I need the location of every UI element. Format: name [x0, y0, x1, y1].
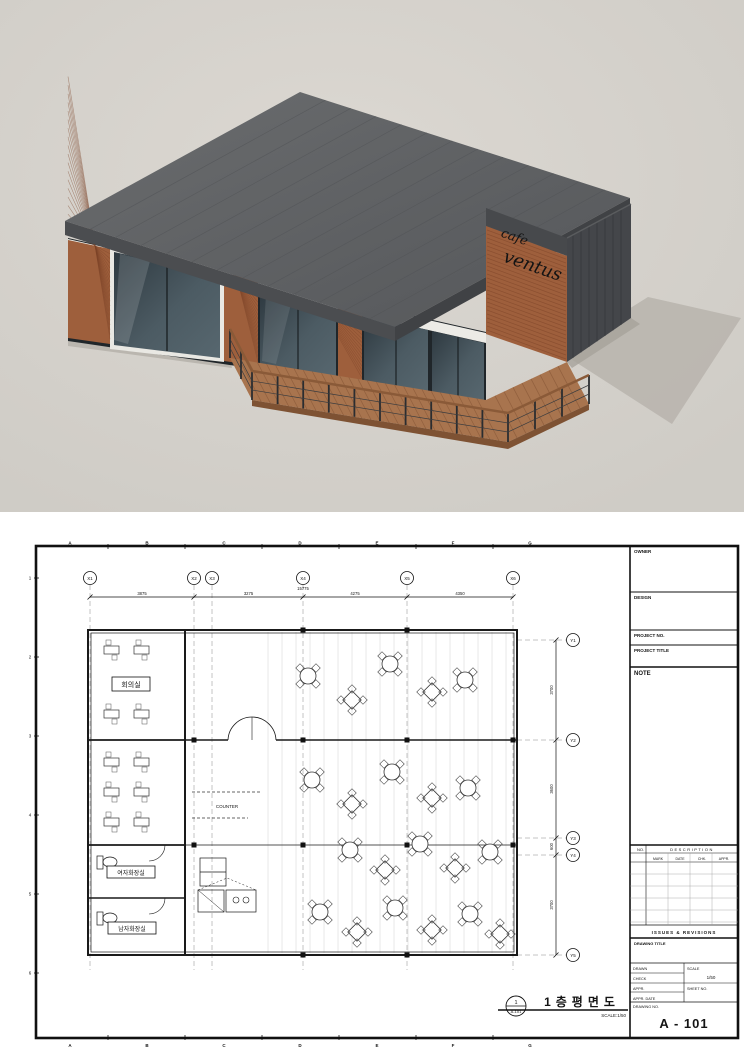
render-3d-view: cafe ventus	[0, 0, 744, 512]
scale-value: 1/50	[707, 975, 716, 980]
grid-y-label: Y2	[570, 738, 576, 743]
dim-top: 4350	[455, 591, 465, 596]
dim-top: 3275	[244, 591, 254, 596]
grid-x-label: X4	[300, 576, 306, 581]
edge-letter-bottom: E	[375, 1043, 378, 1048]
sheet-no-label: SHEET NO.	[687, 987, 707, 991]
edge-letter-top: G	[528, 541, 532, 546]
toilet-women-label: 여자화장실	[117, 869, 145, 877]
project-title-label: PROJECT TITLE	[634, 648, 669, 653]
check-label: CHECK	[633, 977, 647, 981]
design-label: DESIGN	[634, 595, 651, 600]
grid-y-label: Y4	[570, 853, 576, 858]
grid-x-label: X5	[404, 576, 410, 581]
appr-date-label: APPR. DATE	[633, 997, 656, 1001]
grid-y-label: Y5	[570, 953, 576, 958]
grid-x-label: X1	[87, 576, 93, 581]
page: cafe ventus AABBCCDDEEFFGG123456 X1X2X3X…	[0, 0, 744, 1051]
rev-col-mark: MARK	[653, 857, 664, 861]
edge-letter-top: E	[375, 541, 378, 546]
meeting-room-label: 회의실	[121, 680, 140, 689]
scale-label: SCALE	[687, 967, 700, 971]
floorplan-svg: AABBCCDDEEFFGG123456 X1X2X3X4X5X6 Y1Y2Y3…	[0, 540, 744, 1051]
project-no-label: PROJECT NO.	[634, 633, 665, 638]
grid-x-label: X6	[510, 576, 516, 581]
rev-col-date: DATE	[675, 857, 685, 861]
render-3d-svg: cafe ventus	[0, 0, 744, 512]
floorplan-sheet: AABBCCDDEEFFGG123456 X1X2X3X4X5X6 Y1Y2Y3…	[0, 540, 744, 1051]
edge-letter-bottom: G	[528, 1043, 532, 1048]
rev-description-label: DESCRIPTION	[670, 847, 714, 852]
detail-bubble-number: 1	[514, 1000, 517, 1006]
plan-title-text: 1층평면도	[544, 994, 620, 1009]
rev-no-label: NO.	[637, 847, 644, 852]
drawing-no-label: DRAWING NO.	[633, 1005, 659, 1009]
grid-y-label: Y3	[570, 836, 576, 841]
dim-right: 3700	[549, 900, 554, 910]
grid-x-label: X2	[191, 576, 197, 581]
note-label: NOTE	[634, 671, 651, 677]
drawing-number: A - 101	[659, 1016, 708, 1031]
appr-label: APPR.	[633, 987, 644, 991]
dim-right: 3700	[549, 685, 554, 695]
drawing-title-label: DRAWING TITLE	[634, 941, 666, 946]
grid-x-label: X3	[209, 576, 215, 581]
edge-letter-top: F	[452, 541, 455, 546]
toilet-men-label: 남자화장실	[118, 925, 146, 933]
grid-y-label: Y1	[570, 638, 576, 643]
owner-label: OWNER	[634, 549, 652, 554]
detail-bubble-sheet: A-101	[511, 1009, 522, 1014]
dim-right: 600	[549, 842, 554, 850]
dim-right: 3600	[549, 784, 554, 794]
rev-col-appr: APPR.	[719, 857, 730, 861]
sheet-background	[0, 540, 744, 1051]
dim-top: 3875	[137, 591, 147, 596]
counter-label: COUNTER	[216, 804, 239, 809]
drawn-label: DRAWN	[633, 967, 647, 971]
rev-col-chk: CHK.	[698, 857, 706, 861]
plan-scale-text: SCALE:1/50	[601, 1013, 626, 1018]
edge-letter-bottom: F	[452, 1043, 455, 1048]
dim-top: 4275	[350, 591, 360, 596]
dim-top-total: 15775	[297, 586, 309, 591]
issues-label: ISSUES & REVISIONS	[652, 930, 717, 935]
